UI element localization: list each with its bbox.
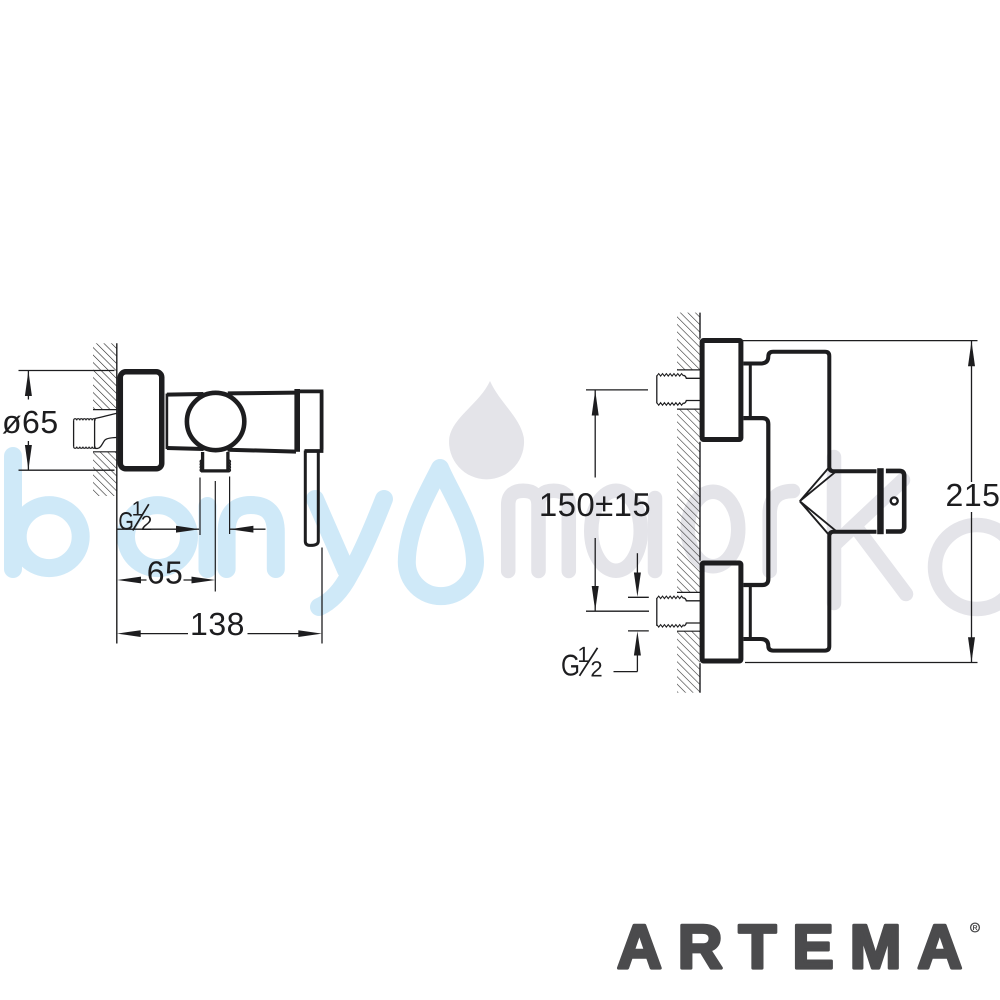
svg-text:65: 65 xyxy=(147,554,184,590)
svg-text:2: 2 xyxy=(590,657,602,682)
svg-text:R: R xyxy=(972,925,977,932)
svg-text:ARTEMA: ARTEMA xyxy=(617,913,978,982)
svg-text:215: 215 xyxy=(946,477,1000,513)
svg-text:138: 138 xyxy=(190,606,245,642)
svg-text:ø65: ø65 xyxy=(2,404,59,440)
svg-text:150±15: 150±15 xyxy=(539,486,651,523)
